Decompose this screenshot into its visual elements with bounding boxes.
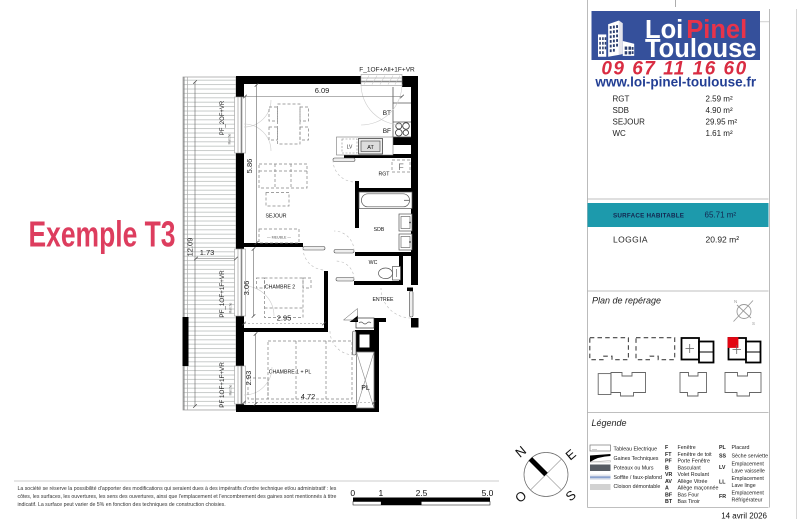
svg-text:La société se réserve la possi: La société se réserve la possibilité d'a…: [18, 486, 337, 492]
svg-text:29.95 m²: 29.95 m²: [706, 118, 738, 127]
svg-text:2.93: 2.93: [244, 371, 253, 386]
svg-text:SS: SS: [719, 454, 727, 460]
svg-text:PF_1OF+1F+VR: PF_1OF+1F+VR: [219, 270, 226, 318]
svg-text:B: B: [665, 465, 669, 471]
svg-text:ENTREE: ENTREE: [372, 297, 394, 303]
svg-text:BT: BT: [665, 499, 673, 505]
svg-text:SDB: SDB: [613, 106, 629, 115]
svg-text:WC: WC: [369, 260, 378, 266]
svg-text:côtes, les surfaces, les ouver: côtes, les surfaces, les ouvertures, les…: [18, 494, 337, 500]
svg-text:LV: LV: [347, 145, 353, 151]
svg-text:Bas Four: Bas Four: [678, 492, 700, 498]
svg-text:CHAMBRE 1 + PL: CHAMBRE 1 + PL: [269, 370, 312, 376]
svg-text:Cloison démontable: Cloison démontable: [614, 484, 661, 490]
svg-text:Poteaux ou Murs: Poteaux ou Murs: [614, 465, 654, 471]
svg-text:Tableau Electrique: Tableau Electrique: [614, 447, 658, 453]
svg-text:5.86: 5.86: [245, 159, 254, 174]
svg-text:FR: FR: [719, 494, 726, 500]
svg-text:F: F: [398, 162, 404, 172]
svg-text:Placard: Placard: [732, 445, 750, 451]
svg-text:5.0: 5.0: [482, 488, 494, 498]
svg-text:N: N: [734, 299, 737, 304]
svg-text:Fenêtre de toit: Fenêtre de toit: [678, 452, 713, 458]
svg-text:F_1OF+All+1F+VR: F_1OF+All+1F+VR: [359, 67, 415, 74]
svg-text:20.92 m²: 20.92 m²: [706, 235, 740, 245]
svg-text:Emplacement: Emplacement: [732, 491, 765, 497]
svg-text:BF: BF: [665, 492, 673, 498]
svg-text:Emplacement: Emplacement: [732, 462, 765, 468]
svg-text:Bas Tiroir: Bas Tiroir: [678, 499, 701, 505]
svg-text:Légende: Légende: [592, 418, 627, 428]
svg-text:SDB: SDB: [374, 227, 385, 233]
svg-text:CHAMBRE 2: CHAMBRE 2: [265, 285, 295, 291]
svg-text:Emplacement: Emplacement: [732, 476, 765, 482]
svg-text:14 avril 2026: 14 avril 2026: [721, 512, 767, 521]
svg-text:FT: FT: [665, 452, 672, 458]
svg-text:LV: LV: [719, 465, 726, 471]
svg-text:2.59 m²: 2.59 m²: [706, 95, 733, 104]
svg-text:AT: AT: [367, 145, 374, 151]
svg-text:1.73: 1.73: [200, 248, 215, 257]
svg-text:PL: PL: [719, 445, 727, 451]
svg-text:LL: LL: [719, 480, 726, 486]
svg-text:4.90 m²: 4.90 m²: [706, 106, 733, 115]
svg-text:Marche: Marche: [229, 302, 233, 313]
svg-text:RGT: RGT: [613, 95, 630, 104]
svg-text:PF_2OF+VR: PF_2OF+VR: [220, 100, 226, 135]
svg-text:VR: VR: [665, 472, 673, 478]
svg-text:Marche: Marche: [229, 384, 233, 395]
svg-text:Allège Vitrée: Allège Vitrée: [678, 479, 708, 485]
svg-text:Réfrigérateur: Réfrigérateur: [732, 498, 763, 504]
svg-text:2.95: 2.95: [277, 314, 292, 323]
svg-text:Fenêtre: Fenêtre: [678, 445, 696, 451]
svg-text:Lave vaisselle: Lave vaisselle: [732, 469, 765, 475]
svg-text:RGT: RGT: [379, 172, 391, 178]
svg-text:BF: BF: [383, 128, 391, 135]
svg-text:Porte Fenêtre: Porte Fenêtre: [678, 459, 710, 465]
svg-text:PF: PF: [665, 459, 673, 465]
svg-text:WC: WC: [613, 129, 627, 138]
svg-text:indicatif. La surface peut var: indicatif. La surface peut varier de 5% …: [18, 502, 226, 508]
svg-text:Volet Roulant: Volet Roulant: [678, 472, 710, 478]
svg-text:2.5: 2.5: [416, 488, 428, 498]
svg-text:Plan de repérage: Plan de repérage: [592, 296, 661, 306]
svg-text:12.09: 12.09: [186, 238, 195, 257]
svg-text:A: A: [665, 486, 669, 492]
svg-text:1: 1: [379, 488, 384, 498]
svg-text:PF 1OF+1F+VR: PF 1OF+1F+VR: [219, 362, 226, 408]
svg-text:PL: PL: [361, 385, 370, 392]
svg-text:S: S: [752, 321, 755, 326]
svg-text:6.09: 6.09: [315, 86, 330, 95]
svg-text:0: 0: [350, 488, 355, 498]
svg-text:Basculant: Basculant: [678, 465, 702, 471]
svg-text:Gaines Techniques: Gaines Techniques: [614, 456, 659, 462]
svg-text:SURFACE HABITABLE: SURFACE HABITABLE: [613, 213, 684, 220]
svg-text:SEJOUR: SEJOUR: [265, 214, 286, 220]
svg-text:Lave linge: Lave linge: [732, 483, 756, 489]
svg-text:Allège maçonnée: Allège maçonnée: [678, 486, 719, 492]
svg-text:65.71 m²: 65.71 m²: [705, 211, 737, 220]
svg-text:AV: AV: [665, 479, 672, 485]
svg-text:Marche: Marche: [228, 133, 232, 144]
svg-text:4.72: 4.72: [301, 392, 316, 401]
svg-text:Soffite / faux-plafond: Soffite / faux-plafond: [614, 475, 663, 481]
svg-text:Exemple T3: Exemple T3: [29, 213, 176, 254]
svg-text:www.loi-pinel-toulouse.fr: www.loi-pinel-toulouse.fr: [594, 75, 756, 90]
svg-text:Sèche serviette: Sèche serviette: [732, 454, 769, 460]
svg-text:1.61 m²: 1.61 m²: [706, 129, 733, 138]
svg-text:— MEUBLE —: — MEUBLE —: [267, 236, 291, 240]
svg-text:3.06: 3.06: [242, 281, 251, 296]
svg-text:LOGGIA: LOGGIA: [613, 235, 648, 245]
svg-text:SEJOUR: SEJOUR: [613, 118, 646, 127]
